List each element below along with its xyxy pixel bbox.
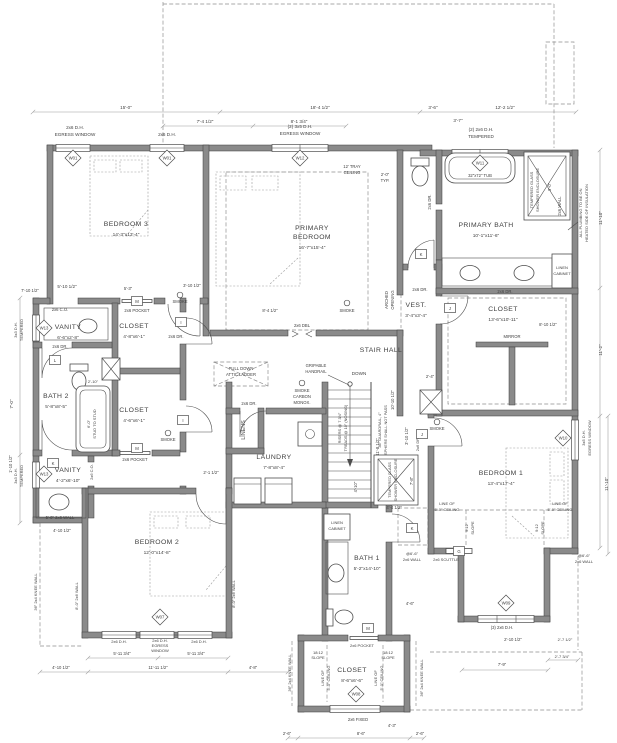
annotation-label: 15'-0" [120, 105, 132, 110]
annotation-label: PULL DOWN [229, 366, 254, 371]
window-tag: W13 [40, 326, 49, 331]
annotation-label: 36" 2x4 KNEE WALL [33, 573, 38, 611]
annotation-label: TYP. [381, 178, 390, 183]
annotation-label: OPENING [390, 290, 395, 309]
annotation-label: 2x6 D.H. [66, 125, 84, 130]
annotation-label: 2x6 WALL [575, 559, 594, 564]
annotation-label: 2x6 DR. [168, 334, 183, 339]
door-swing [196, 494, 226, 524]
door-swing [42, 420, 72, 450]
annotation-label: MIRROR [504, 334, 521, 339]
sink [79, 319, 97, 333]
closet-shelving-outline [448, 298, 566, 404]
sink [328, 564, 344, 582]
chase [420, 390, 442, 414]
annotation-label: 18'-4 1/2" [310, 105, 330, 110]
annotation-label: 4'-6" [406, 601, 415, 606]
room-label: PRIMARY BATH [458, 222, 513, 229]
annotation-label: SLOPE [311, 655, 325, 660]
window [572, 420, 579, 460]
annotation-label: 7'-4 1/2" [197, 119, 214, 124]
annotation-label: ATTIC LADDER [226, 372, 256, 377]
annotation-label: 5'-0" CEILING [547, 507, 572, 512]
annotation-label: EGRESS WINDOW [587, 420, 592, 456]
sink [49, 494, 69, 510]
annotation-label: 4'-8" [249, 665, 258, 670]
annotation-label: 3'-10 1/2" [183, 283, 201, 288]
room-label: LAUNDRY [256, 454, 291, 461]
room-size-label: 6'-6"x2'-8" [57, 335, 79, 341]
annotation-label: WINDOW [151, 648, 169, 653]
annotation-label: 6'-0" [86, 419, 91, 428]
annotation-label: STUD TO STUD [92, 409, 97, 439]
annotation-label: 2x6 WALL [557, 196, 562, 216]
vanity-counter [36, 488, 86, 518]
annotation-label: DOWN [352, 371, 367, 376]
annotation-label: 2'-4" [426, 374, 435, 379]
door-tag: J [449, 306, 451, 311]
room-label: BATH 1 [354, 555, 380, 562]
annotation-label: 36" 2x4 KNEE WALL [419, 659, 424, 697]
room-label: BEDROOM [293, 234, 331, 241]
annotation-label: TEMPERED [19, 319, 24, 341]
annotation-label: SLOPE [470, 521, 475, 535]
window-tag: W10 [559, 436, 568, 441]
annotation-label: 8'-6" [357, 731, 366, 736]
annotation-label: MONOX. [294, 400, 311, 405]
annotation-label: 5'-10 1/2" [57, 284, 77, 289]
annotation-label: ARCHED [384, 291, 389, 309]
annotation-label: 2x6 WALL [403, 557, 422, 562]
room-size-label: 10'-1"x11'-6" [473, 233, 500, 239]
window-tag: W01 [69, 156, 78, 161]
annotation-label: (3) 2x6 D.H. [491, 625, 514, 630]
window [330, 706, 380, 713]
annotation-label: 11'-8 1/2" [375, 438, 380, 456]
annotation-label: 2x6 POCKET [350, 643, 375, 648]
annotation-label: SPHERE SHALL NOT PASS [383, 405, 388, 455]
annotation-label: 5'-11 3/4" [113, 651, 131, 656]
door-tag: I [182, 418, 183, 423]
annotation-label: 2x6 DBL [294, 323, 311, 328]
annotation-label: @6'-6" [406, 551, 419, 556]
vanity-counter [442, 258, 552, 286]
annotation-label: HANDRAIL [305, 369, 327, 374]
washer [234, 478, 261, 504]
utility-sink [298, 422, 322, 446]
annotation-label: CARBON [293, 394, 311, 399]
chase [102, 358, 120, 380]
annotation-label: TREADS @ 10" (NOSING) [343, 404, 348, 451]
annotation-label: 2x6 C.O. [89, 464, 94, 480]
annotation-label: LINEN [331, 520, 343, 525]
annotation-label: 2x6 POCKET [124, 308, 150, 313]
vanity-counter [326, 542, 348, 594]
annotation-label: 2x6 DR. [52, 344, 67, 349]
annotation-label: TEMPERED GLASS [387, 462, 392, 498]
door-swing [186, 406, 212, 432]
annotation-label: 12' TRAY [343, 164, 361, 169]
annotation-label: 2x6 D.H. [191, 639, 207, 644]
handrail-leader [328, 375, 349, 385]
annotation-label: 2x6 DR. [427, 194, 432, 209]
annotation-label: 2'-7 1/2" [558, 637, 573, 642]
annotation-label: LINE OF [439, 501, 455, 506]
annotation-label: 2x6 DR. [497, 289, 512, 294]
smoke-detector-icon [434, 419, 440, 425]
chimney-outline [546, 42, 574, 104]
annotation-label: 3x3 D.H. [13, 468, 18, 484]
room-size-label: 4'-2"x6'-10" [56, 478, 80, 484]
door-tag: I [180, 320, 181, 325]
room-label: CLOSET [337, 667, 367, 674]
annotation-label: SMOKE [339, 308, 354, 313]
smoke-detector-icon [299, 380, 305, 386]
annotation-label: 2'-0" [381, 172, 390, 177]
annotation-label: 5'-3" [124, 286, 133, 291]
room-label: BATH 2 [43, 393, 69, 400]
stairs [328, 375, 371, 508]
annotation-label: 36" 2x4 KNEE WALL [287, 654, 292, 692]
annotation-label: SMOKE [172, 299, 187, 304]
annotation-label: 3x3 D.H. [13, 322, 18, 338]
down-arrow [347, 459, 353, 467]
room-label: VANITY [55, 467, 82, 474]
annotation-label: 2'-7 3/4" [555, 654, 570, 659]
window [478, 616, 534, 623]
room-size-label: 8'-6"x6'-6" [341, 678, 363, 684]
annotation-label: 3'-6" [428, 105, 438, 110]
floor-plan-sheet: BEDROOM 314'-3"x13'-4"PRIMARYBEDROOM16'-… [0, 0, 617, 743]
annotation-label: 2x6 SCUTTLE [433, 557, 459, 562]
annotation-label: 3'-0" [547, 182, 552, 191]
annotation-label: CABINET [328, 526, 346, 531]
annotation-label: 11'-10" [604, 477, 609, 491]
smoke-detector-icon [165, 430, 171, 436]
room-label: BEDROOM 2 [135, 539, 179, 546]
annotation-label: 11'-2" [598, 344, 603, 356]
annotation-label: 2'-10" [88, 379, 99, 384]
door-tag: K [411, 526, 414, 531]
floor-plan-drawing: BEDROOM 314'-3"x13'-4"PRIMARYBEDROOM16'-… [0, 0, 617, 743]
annotation-label: 11'-10" [598, 211, 603, 225]
toilet [411, 158, 429, 186]
annotation-label: SLOPE [540, 521, 545, 535]
door-tag: M [135, 446, 139, 451]
room-size-label: 5'-8"x8'-5" [45, 404, 67, 410]
cased-opening-mark [306, 331, 312, 337]
annotation-label: HEATED SIDE OF INSULATION [584, 184, 589, 242]
annotation-label: 3'-10 1/2" [404, 427, 409, 445]
smoke-detector-icon [177, 292, 183, 298]
cased-opening-mark [292, 331, 298, 337]
room-label: VANITY [55, 324, 82, 331]
annotation-label: EGRESS WINDOW [280, 131, 321, 136]
annotation-label: 2x6 DR. [241, 401, 256, 406]
annotation-label: 7'-8" [409, 476, 414, 485]
annotation-label: 2x6 D.H. [111, 639, 127, 644]
toilet [326, 609, 353, 626]
annotation-label: 8'-4 1/2" [262, 308, 278, 313]
annotation-label: 1'-10 1/2" [8, 455, 13, 473]
annotation-label: 7'-10 1/2" [21, 288, 39, 293]
window-tag: W13 [40, 472, 49, 477]
annotation-label: (2) 3x5 D.H. [288, 124, 313, 129]
room-size-label: 3'-4"x3'-4" [405, 313, 427, 319]
annotation-label: 10'-10 1/2" [390, 389, 395, 409]
room-label: CLOSET [119, 323, 149, 330]
annotation-label: 4'-10 1/2" [52, 665, 70, 670]
room-label: BEDROOM 3 [104, 221, 148, 228]
room-size-label: 12'-0"x14'-8" [144, 550, 171, 556]
annotation-label: 3x5 D.H. [581, 430, 586, 446]
annotation-label: 2x6 DR. [412, 287, 427, 292]
annotation-label: SHOWER ENCLOSURE [535, 168, 540, 212]
annotation-label: RISERS @ 7 3/4" [337, 412, 342, 443]
annotation-label: SHOWER ENCLOSURE [393, 458, 398, 501]
room-size-label: 4'-6"x6'-1" [123, 418, 145, 424]
window-tag: W07 [156, 615, 165, 620]
window-tag: W01 [163, 156, 172, 161]
room-size-label: 14'-3"x13'-4" [113, 232, 140, 238]
annotation-label: @6'-6" [578, 553, 591, 558]
annotation-label: 2x6 D.H. [158, 132, 176, 137]
annotation-label: TEMPERED [19, 465, 24, 487]
smoke-detector-icon [344, 300, 350, 306]
annotation-label: GRIPABLE [306, 363, 327, 368]
annotation-label: 9:12 [534, 523, 539, 532]
room-label: PRIMARY [295, 225, 329, 232]
room-label: VEST. [406, 302, 427, 309]
pocket-door [350, 637, 378, 640]
room-size-label: 13'-6"x10'-11" [488, 317, 517, 323]
annotation-label: LINEN [556, 265, 568, 270]
window-tag: W09 [502, 601, 511, 606]
annotation-label: TEMPERED GLASS [529, 171, 534, 208]
annotation-label: 8'-0" 2x6 WALL [74, 582, 79, 610]
annotation-label: TEMPERED [468, 134, 494, 139]
annotation-label: 2'-1 1/2" [203, 470, 219, 475]
annotation-label: 2'-6" [416, 731, 425, 736]
annotation-label: 4'-3" [388, 723, 397, 728]
annotation-label: SMOKE [294, 388, 309, 393]
annotation-label: CABINET [553, 271, 571, 276]
annotation-label: 12'-2 1/2" [495, 105, 515, 110]
annotation-label: LINE OF [373, 670, 378, 686]
annotation-label: 4'-10" [353, 481, 358, 492]
annotation-label: 2x6 C.O. [52, 307, 69, 312]
room-size-label: 16'-7"x15'-4" [299, 245, 326, 251]
dryer [265, 478, 292, 504]
bed [216, 172, 300, 286]
door-tag: K [420, 252, 423, 257]
room-size-label: 7'-8"x8'-4" [263, 465, 285, 471]
annotation-label: 7'-0" [9, 399, 14, 409]
door-tag: M [366, 626, 370, 631]
annotation-label: 5'-11 3/4" [187, 651, 205, 656]
annotation-label: 2'-10 1/2" [504, 637, 522, 642]
annotation-label: (2) 2x6 D.H. [469, 127, 494, 132]
room-label: BEDROOM 1 [479, 470, 523, 477]
annotation-label: EGRESS WINDOW [55, 132, 96, 137]
annotation-label: LINE OF [320, 670, 325, 686]
room-size-label: 13'-4"x17'-4" [488, 481, 515, 487]
room-size-label: 4'-8"x6'-1" [123, 334, 145, 340]
annotation-label: 8'-0" 2x6 WALL [231, 580, 236, 608]
annotation-label: SMOKE [160, 437, 175, 442]
door-tag: M [135, 299, 139, 304]
room-label: CLOSET [119, 407, 149, 414]
annotation-label: 2x6 DR. [415, 437, 420, 451]
annotation-label: LINENS [241, 420, 247, 440]
sink [514, 266, 534, 281]
room-label: CLOSET [488, 306, 518, 313]
annotation-label: 8'-10 1/2" [539, 322, 557, 327]
tray-ceiling-outline [226, 172, 368, 330]
room-label: STAIR HALL [360, 347, 402, 354]
annotation-label: SLOPE [381, 655, 395, 660]
door-tag: J [421, 432, 423, 437]
annotation-label: LINE OF [552, 501, 568, 506]
annotation-label: CEILING [344, 170, 361, 175]
annotation-label: 32"x72" TUB [468, 173, 492, 178]
annotation-label: 2'-6" [283, 731, 292, 736]
annotation-label: 5'-0" 2x6 WALL [46, 515, 75, 520]
window-tag: W11 [476, 161, 485, 166]
annotation-label: 2x6 POCKET [122, 457, 148, 462]
sink [460, 266, 480, 281]
annotation-label: 9:12 [464, 523, 469, 532]
window-tag: W12 [296, 156, 305, 161]
door-tag: K [52, 461, 55, 466]
annotation-label: 5'-0" CEILING [379, 665, 384, 690]
annotation-label: SMOKE [429, 426, 444, 431]
window-tag: W08 [352, 692, 361, 697]
annotation-label: ALL PLUMBING TO BE ON [578, 188, 583, 237]
annotation-label: 2x6 FIXED [348, 717, 368, 722]
annotation-label: 5'-0" CEILING [434, 507, 459, 512]
annotation-label: 3'-7" [453, 118, 463, 123]
annotation-label: 5'-0" CEILING [326, 665, 331, 690]
annotation-label: 11'-11 1/2" [148, 665, 168, 670]
annotation-label: 7'-9" [498, 662, 507, 667]
room-size-label: 5'-2"x14'-10" [354, 566, 381, 572]
annotation-label: 4'-4 1/2" [386, 505, 402, 510]
annotation-label: 4'-10 1/2" [53, 528, 71, 533]
